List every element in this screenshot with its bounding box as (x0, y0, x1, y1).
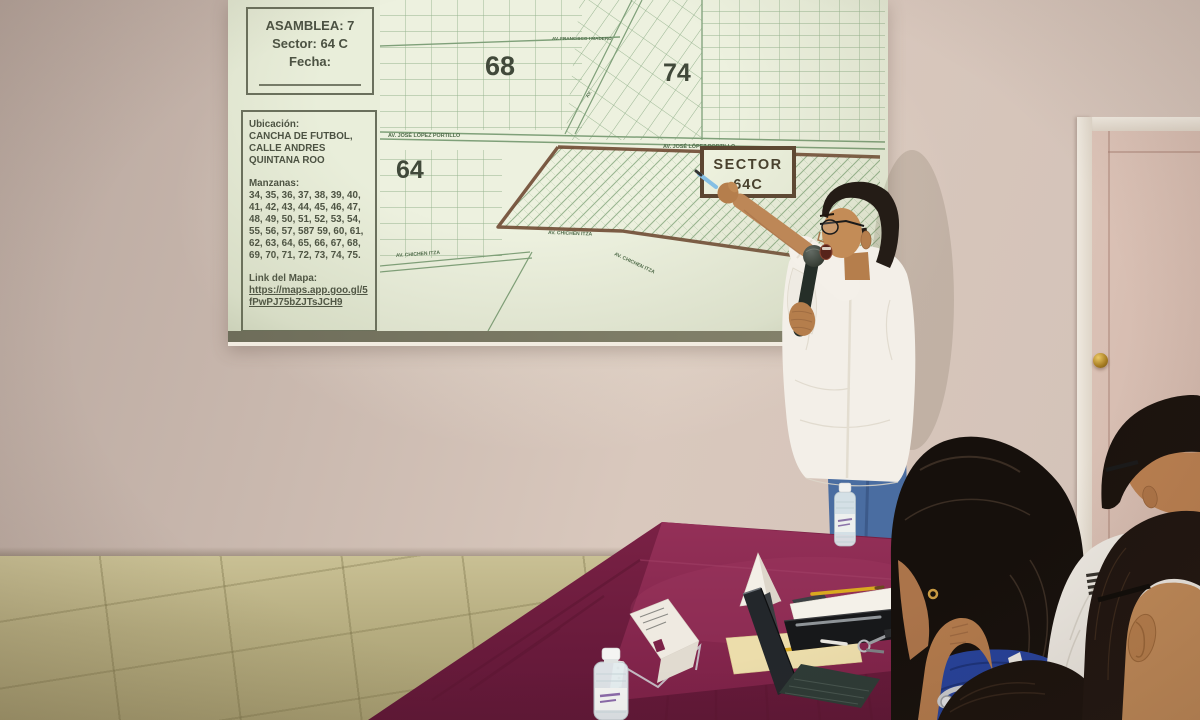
scene-figures (0, 0, 1200, 720)
bottle-2-label (595, 688, 627, 710)
presenter-ear (861, 231, 871, 249)
pointer-pen-tip (696, 171, 701, 175)
water-bottle (835, 483, 856, 546)
photo-scene: ASAMBLEA: 7 Sector: 64 C Fecha: Ubicació… (0, 0, 1200, 720)
bottle-2-cap (602, 648, 620, 660)
bottle-cap (839, 483, 851, 492)
bottle-label (835, 514, 855, 532)
presenter-forearm (740, 201, 807, 250)
audience (891, 395, 1200, 720)
presenter-open-mouth (820, 245, 832, 260)
presenter (696, 171, 915, 538)
audience-head-closeup (1082, 511, 1200, 720)
